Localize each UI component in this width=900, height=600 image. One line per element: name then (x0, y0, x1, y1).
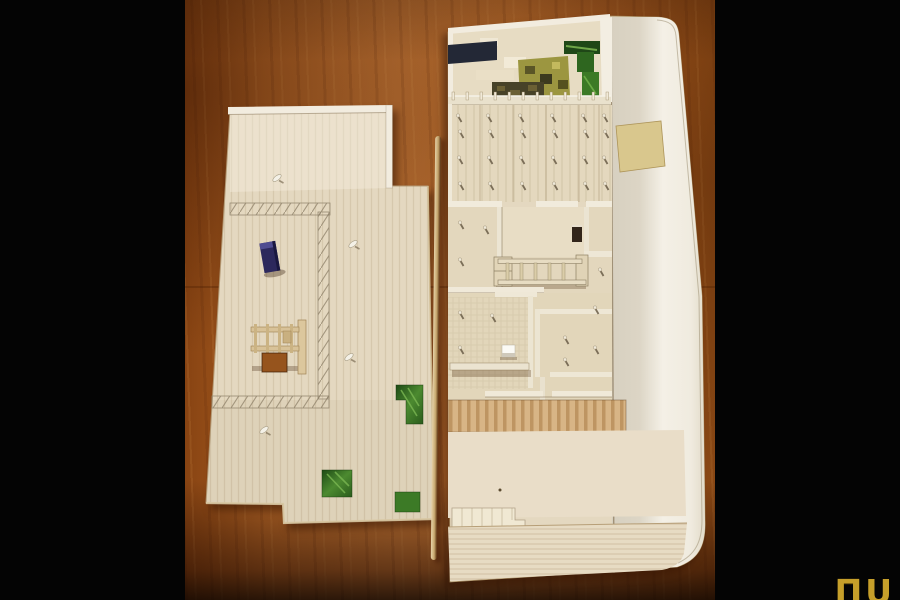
right-model-board (440, 8, 718, 596)
small-slat-strip (452, 508, 525, 527)
letterbox-right (715, 0, 900, 600)
notch-wall (386, 105, 393, 188)
watermark-logo: ΠU (835, 575, 895, 600)
cutout-hole (262, 353, 287, 372)
photo-stage: ΠU (0, 0, 900, 600)
rooms-lower (448, 292, 612, 401)
bottom-plate (448, 523, 687, 581)
smooth-terrace (448, 430, 686, 518)
tan-block (616, 121, 665, 172)
dark-doorway (572, 227, 582, 242)
small-knot (499, 489, 502, 492)
watermark-text: ΠU (835, 572, 895, 600)
rooms-upper (448, 207, 612, 294)
slat-deck (448, 400, 626, 432)
white-cube (500, 345, 517, 360)
column-hall (448, 104, 612, 204)
letterbox-left (0, 0, 185, 600)
left-model-board (195, 100, 445, 535)
